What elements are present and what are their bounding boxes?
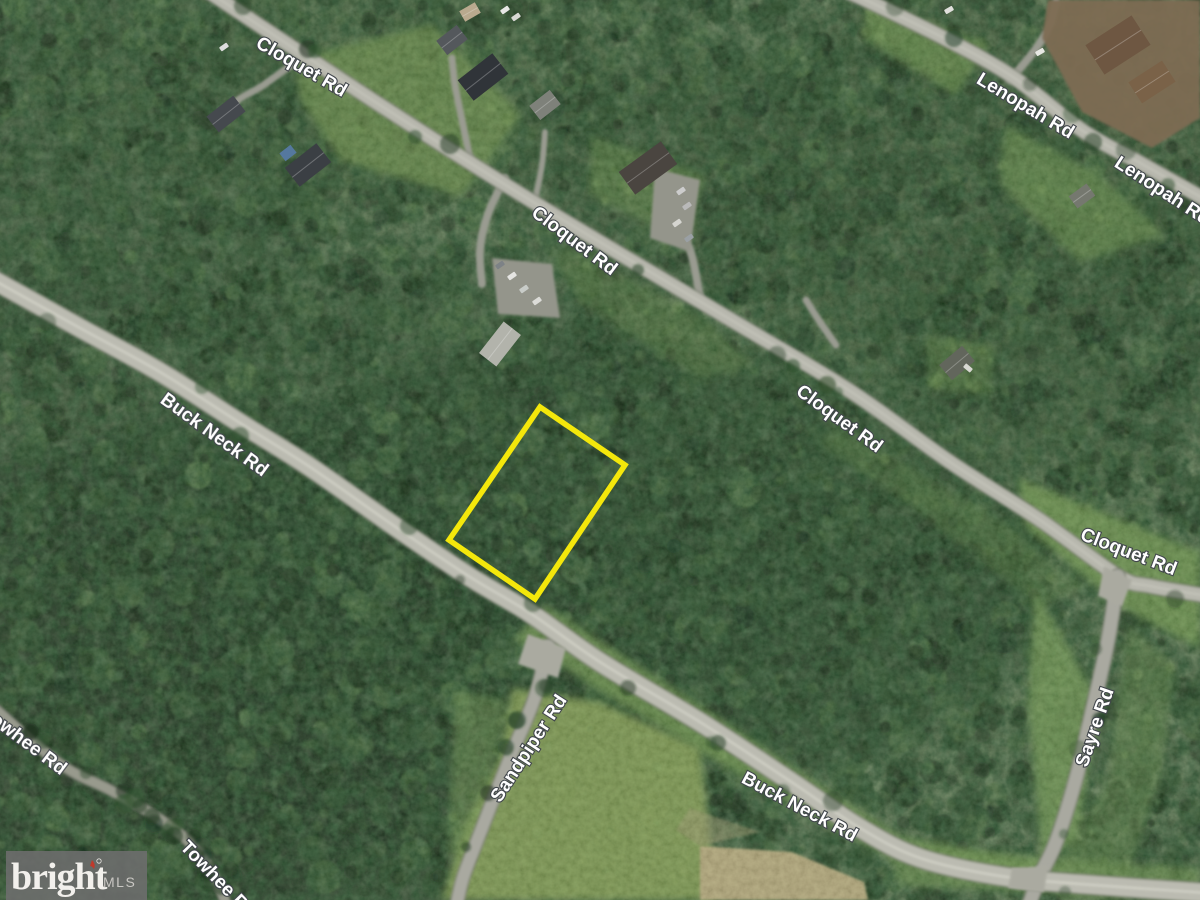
svg-text:MLS: MLS <box>103 874 136 890</box>
